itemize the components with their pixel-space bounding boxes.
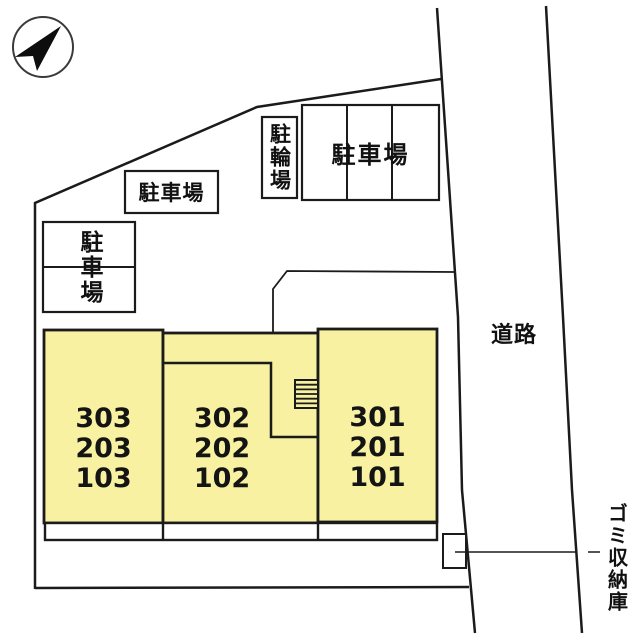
road-label: 道路 xyxy=(486,320,542,346)
bicycle-parking-label: 駐輪場 xyxy=(262,117,297,198)
unit-numbers-west-column: 303 203 103 xyxy=(44,404,163,494)
site-plan-drawing xyxy=(0,0,640,640)
site-plan: 駐車場 駐車場 駐車場 駐輪場 道路 ゴミ収納庫 303 203 103 302… xyxy=(0,0,640,640)
garbage-storage-box xyxy=(443,534,466,568)
unit-number: 102 xyxy=(167,464,277,494)
unit-number: 101 xyxy=(318,463,437,493)
stairs-icon xyxy=(295,380,318,408)
unit-number: 201 xyxy=(318,433,437,463)
unit-number: 301 xyxy=(318,403,437,433)
unit-numbers-east-column: 301 201 101 xyxy=(318,403,437,493)
unit-number: 302 xyxy=(167,404,277,434)
compass-icon xyxy=(13,17,73,77)
approach-path-line xyxy=(273,271,455,334)
unit-number: 203 xyxy=(44,434,163,464)
road-east-edge-line xyxy=(546,6,582,633)
unit-numbers-middle-column: 302 202 102 xyxy=(167,404,277,494)
building-front-strip xyxy=(45,523,437,540)
parking-northeast-label: 駐車場 xyxy=(302,105,439,200)
site-boundary-south-line xyxy=(35,587,469,588)
parking-west-label: 駐車場 xyxy=(43,222,135,312)
garbage-storage-label: ゴミ収納庫 xyxy=(602,500,632,615)
unit-number: 303 xyxy=(44,404,163,434)
unit-number: 202 xyxy=(167,434,277,464)
unit-number: 103 xyxy=(44,464,163,494)
parking-center-label: 駐車場 xyxy=(125,171,218,213)
